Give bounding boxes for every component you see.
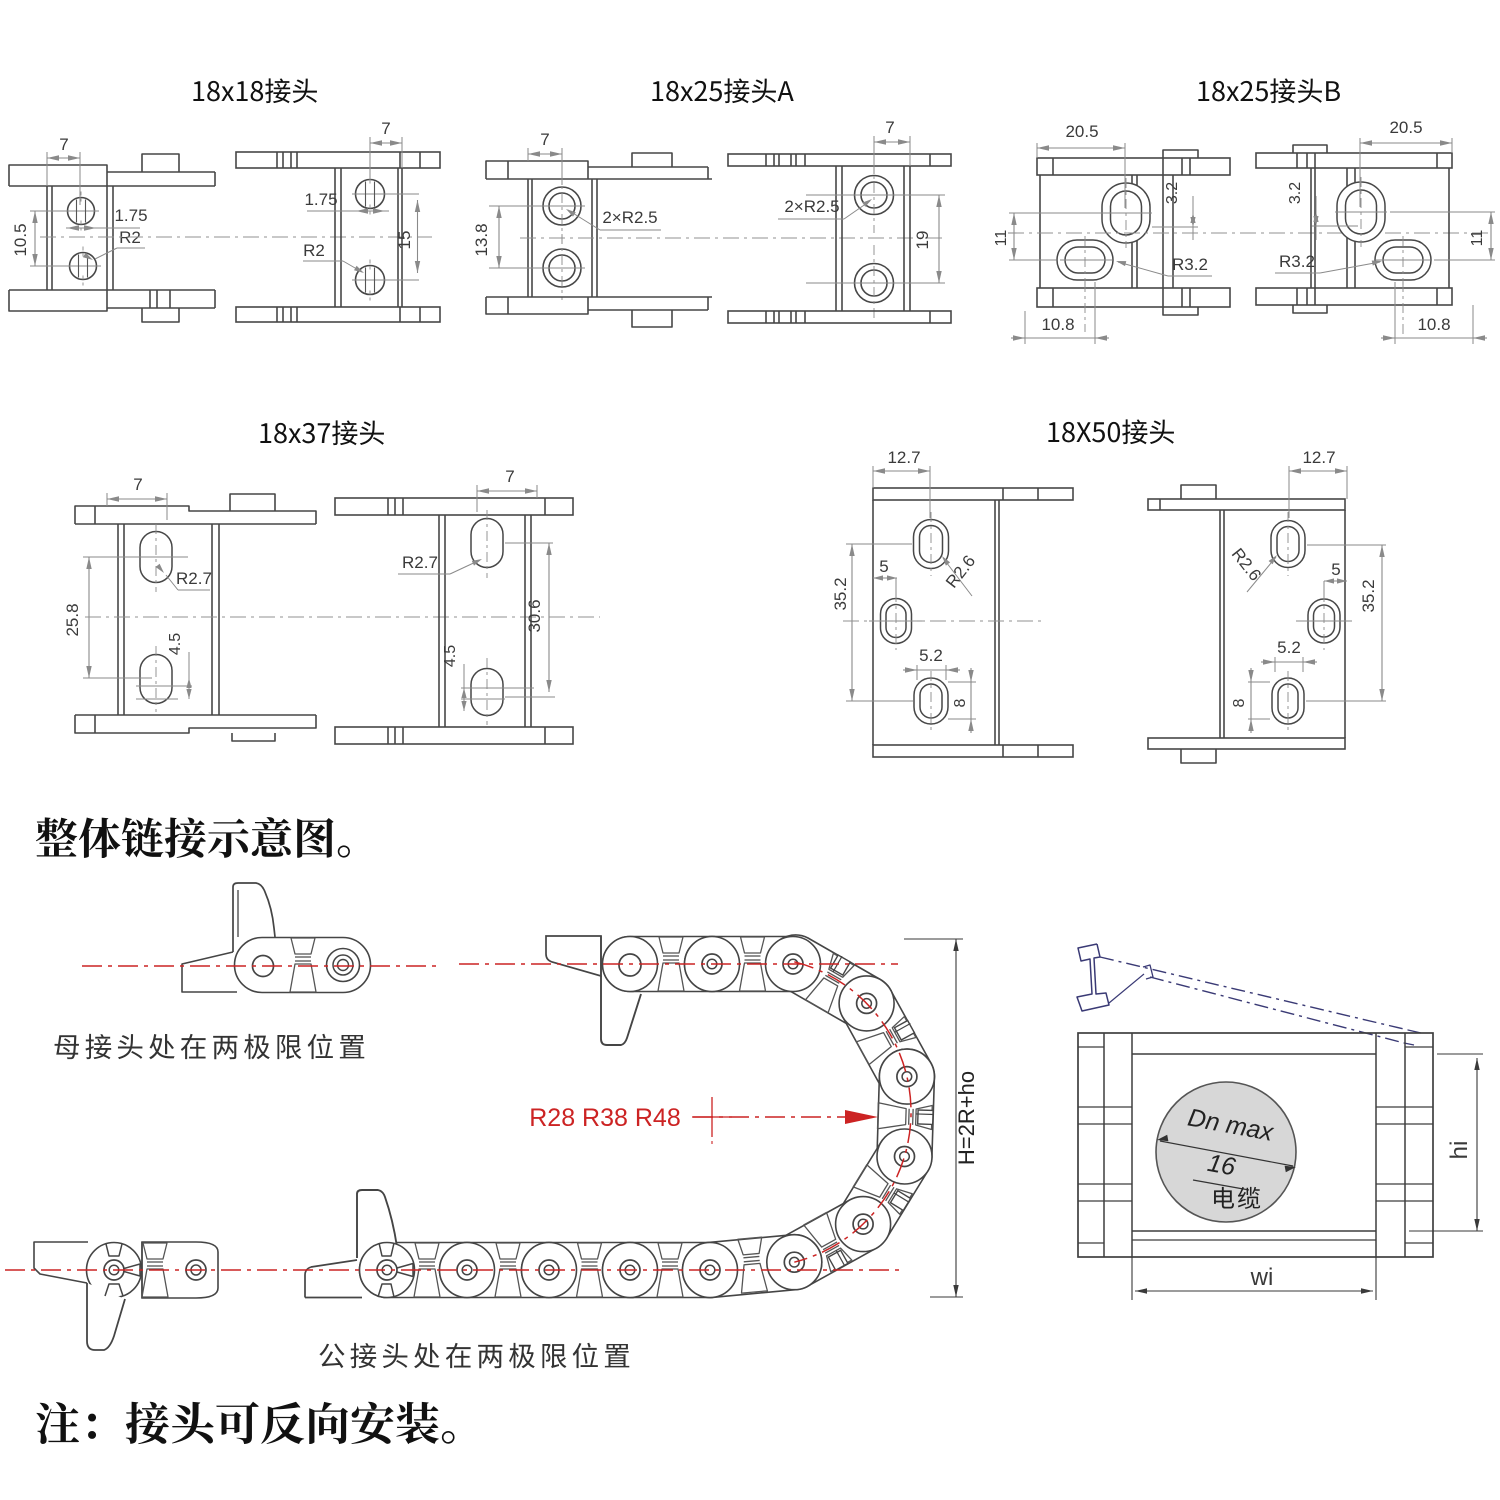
svg-text:7: 7	[885, 118, 894, 137]
svg-text:11: 11	[993, 230, 1010, 247]
svg-text:hi: hi	[1446, 1141, 1473, 1160]
svg-text:30.6: 30.6	[525, 599, 544, 632]
svg-text:7: 7	[505, 467, 514, 486]
svg-text:35.2: 35.2	[1359, 579, 1378, 612]
svg-text:4.5: 4.5	[442, 645, 459, 667]
svg-text:5.2: 5.2	[919, 646, 943, 665]
svg-text:R28 R38 R48: R28 R38 R48	[529, 1104, 680, 1132]
svg-text:15: 15	[395, 231, 414, 250]
svg-text:5: 5	[879, 557, 888, 576]
svg-text:2×R2.5: 2×R2.5	[784, 197, 839, 216]
svg-text:7: 7	[381, 119, 390, 138]
svg-text:10.8: 10.8	[1417, 315, 1450, 334]
svg-text:1.75: 1.75	[304, 190, 337, 209]
svg-text:7: 7	[540, 130, 549, 149]
svg-text:2×R2.5: 2×R2.5	[602, 208, 657, 227]
svg-text:R2.7: R2.7	[176, 569, 212, 588]
svg-text:4.5: 4.5	[167, 633, 184, 655]
svg-text:R2.7: R2.7	[402, 553, 438, 572]
svg-text:10.8: 10.8	[1041, 315, 1074, 334]
svg-text:7: 7	[133, 475, 142, 494]
svg-text:8: 8	[1231, 698, 1248, 707]
svg-text:H=2R+ho: H=2R+ho	[954, 1071, 979, 1165]
svg-text:7: 7	[59, 135, 68, 154]
svg-text:5: 5	[1331, 560, 1340, 579]
svg-text:5.2: 5.2	[1277, 638, 1301, 657]
svg-text:R3.2: R3.2	[1279, 252, 1315, 271]
svg-text:3.2: 3.2	[1164, 182, 1181, 204]
svg-text:19: 19	[913, 231, 932, 250]
svg-text:13.8: 13.8	[472, 223, 491, 256]
svg-text:8: 8	[952, 698, 969, 707]
svg-text:1.75: 1.75	[114, 206, 147, 225]
svg-text:10.5: 10.5	[11, 223, 30, 256]
svg-text:wi: wi	[1250, 1264, 1274, 1291]
svg-text:35.2: 35.2	[831, 577, 850, 610]
svg-text:12.7: 12.7	[887, 448, 920, 467]
svg-text:3.2: 3.2	[1287, 182, 1304, 204]
svg-text:11: 11	[1469, 230, 1486, 247]
svg-text:20.5: 20.5	[1065, 122, 1098, 141]
svg-text:20.5: 20.5	[1389, 118, 1422, 137]
svg-text:R2: R2	[303, 241, 325, 260]
svg-text:16: 16	[1205, 1149, 1238, 1182]
svg-text:25.8: 25.8	[63, 603, 82, 636]
svg-text:12.7: 12.7	[1302, 448, 1335, 467]
svg-text:R3.2: R3.2	[1172, 255, 1208, 274]
